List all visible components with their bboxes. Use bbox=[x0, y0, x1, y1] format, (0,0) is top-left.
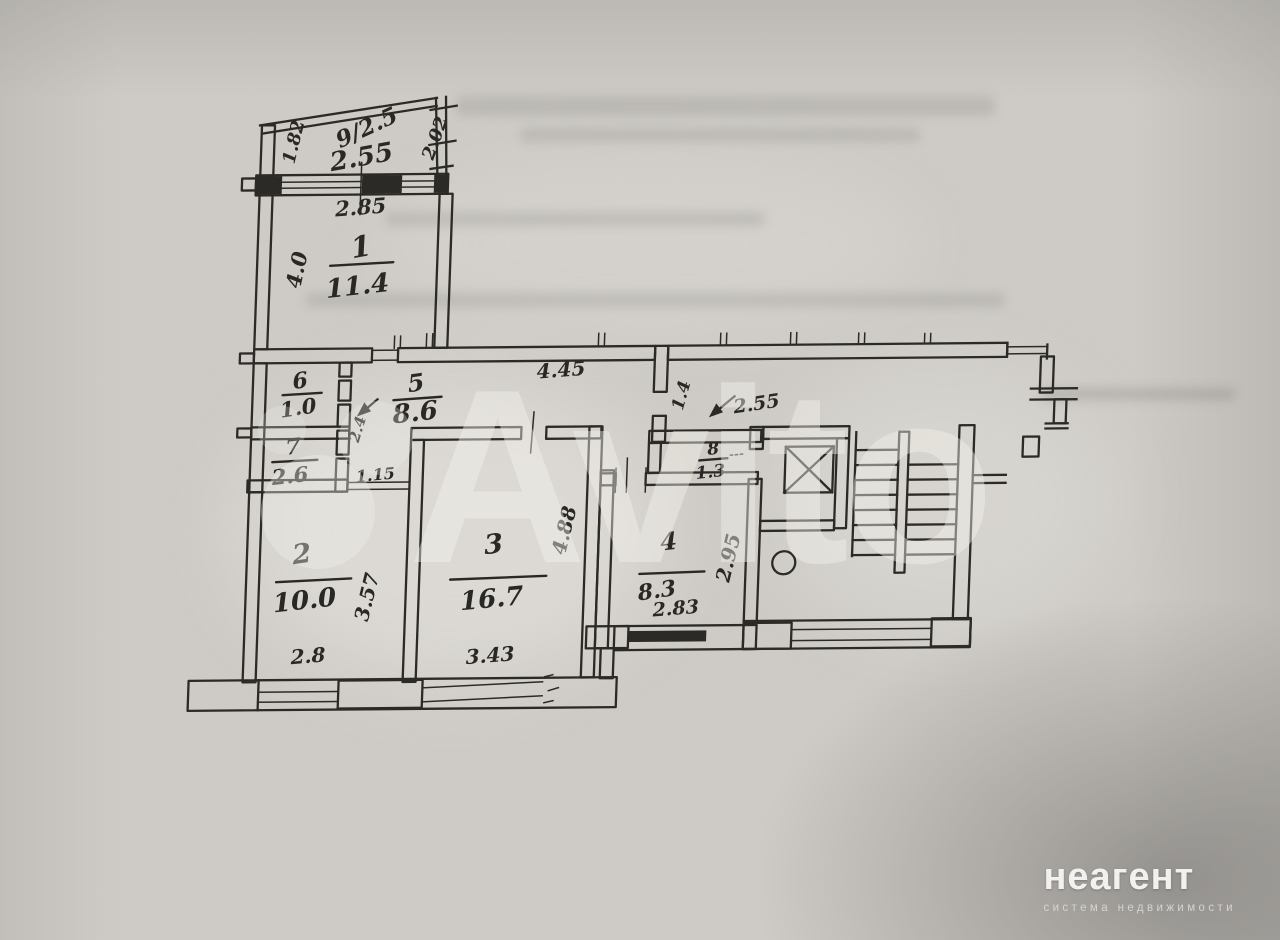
agency-name: неагент bbox=[1043, 856, 1236, 899]
avito-logo-circle bbox=[339, 401, 413, 475]
scanned-floorplan-photo: 9/2.5 2.55 1.82 2.02 bbox=[0, 0, 1280, 940]
wall-pier bbox=[434, 175, 449, 193]
wall-pier bbox=[362, 175, 403, 193]
avito-logo-circle bbox=[261, 455, 375, 569]
agency-tagline: система недвижимости bbox=[1043, 902, 1236, 914]
balcony-dim-right: 2.02 bbox=[418, 114, 453, 163]
room1-width: 2.85 bbox=[334, 193, 387, 222]
room2-depth: 3.57 bbox=[349, 571, 384, 624]
room1-number: 1 bbox=[349, 228, 374, 265]
wall-pier bbox=[338, 680, 423, 709]
avito-watermark-text: Avito bbox=[408, 337, 989, 615]
room1-area: 11.4 bbox=[325, 268, 390, 305]
wall bbox=[434, 194, 452, 348]
avito-logo-circle bbox=[258, 406, 306, 454]
room1-depth: 4.0 bbox=[281, 249, 313, 290]
landing-window-wall bbox=[743, 618, 971, 649]
balcony-dim-left: 1.82 bbox=[279, 118, 310, 165]
wall bbox=[243, 492, 263, 682]
window-sill-tick bbox=[237, 428, 251, 437]
room2-width: 2.8 bbox=[289, 643, 326, 670]
window-sill-tick bbox=[240, 353, 254, 363]
room3-width: 3.43 bbox=[465, 641, 515, 669]
window-sill-tick bbox=[242, 178, 256, 190]
balcony-9: 9/2.5 2.55 1.82 2.02 bbox=[258, 97, 457, 179]
room4-window-wall bbox=[614, 625, 757, 650]
agency-logo: неагент система недвижимости bbox=[1043, 856, 1236, 914]
floorplan-drawing: 9/2.5 2.55 1.82 2.02 bbox=[0, 0, 1280, 940]
room2-area: 10.0 bbox=[272, 582, 337, 619]
wall bbox=[254, 125, 275, 349]
outer-corner-steps bbox=[1022, 356, 1078, 456]
room6-number: 6 bbox=[291, 367, 309, 395]
